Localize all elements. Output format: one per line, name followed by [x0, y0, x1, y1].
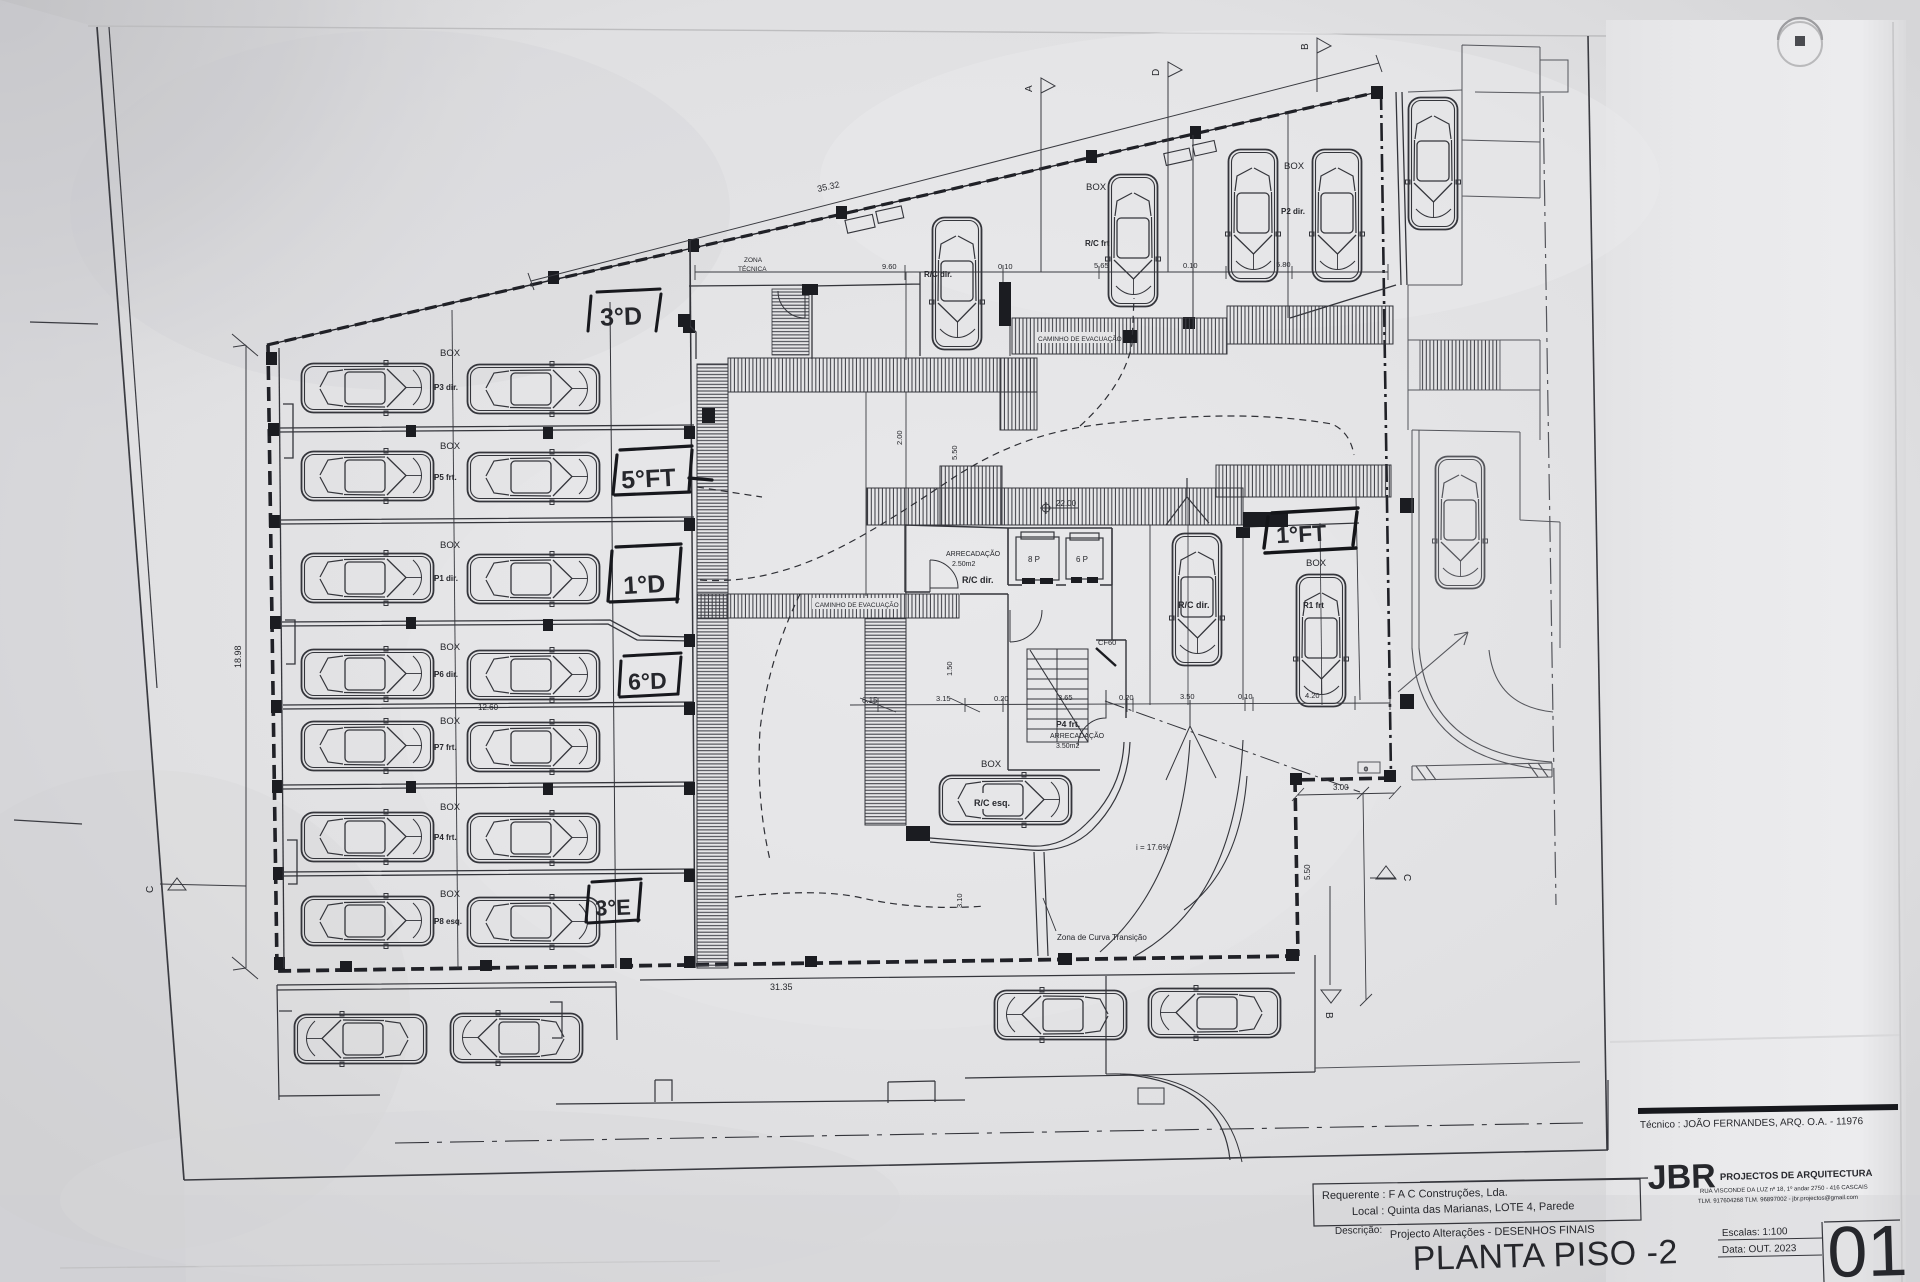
- svg-text:R/C dir.: R/C dir.: [924, 270, 952, 279]
- svg-text:i = 17.6%: i = 17.6%: [1136, 843, 1170, 852]
- svg-text:9.60: 9.60: [882, 262, 897, 271]
- svg-text:CAMINHO DE EVACUAÇÃO: CAMINHO DE EVACUAÇÃO: [815, 600, 899, 609]
- svg-text:2.00: 2.00: [895, 430, 904, 445]
- svg-text:0.20: 0.20: [994, 694, 1009, 703]
- svg-text:BOX: BOX: [440, 348, 461, 359]
- svg-text:o: o: [1364, 766, 1368, 773]
- svg-text:22.00: 22.00: [1056, 499, 1077, 508]
- svg-text:BOX: BOX: [440, 716, 461, 727]
- svg-text:R/C frt: R/C frt: [1085, 239, 1110, 248]
- svg-text:CAMINHO DE EVACUAÇÃO: CAMINHO DE EVACUAÇÃO: [1038, 334, 1122, 343]
- svg-text:BOX: BOX: [440, 642, 461, 653]
- svg-text:3.65: 3.65: [1058, 693, 1073, 702]
- svg-text:P4 frt.: P4 frt.: [1056, 719, 1080, 729]
- svg-text:BOX: BOX: [440, 889, 461, 900]
- svg-text:P4 frt.: P4 frt.: [434, 833, 457, 842]
- svg-text:3.00: 3.00: [1333, 783, 1349, 792]
- svg-text:P1 dir.: P1 dir.: [434, 574, 458, 583]
- svg-text:0.10: 0.10: [1183, 261, 1198, 270]
- svg-text:BOX: BOX: [1086, 182, 1107, 193]
- svg-text:5°FT: 5°FT: [621, 464, 677, 495]
- svg-text:A: A: [1024, 85, 1035, 92]
- svg-text:3°E: 3°E: [595, 894, 632, 920]
- svg-text:3.15: 3.15: [936, 694, 951, 703]
- svg-text:5.65: 5.65: [1094, 261, 1109, 270]
- svg-text:1°D: 1°D: [623, 570, 666, 600]
- svg-text:C: C: [145, 886, 156, 893]
- svg-text:BOX: BOX: [440, 441, 461, 452]
- svg-text:18.98: 18.98: [233, 645, 243, 668]
- svg-text:BOX: BOX: [1284, 161, 1305, 172]
- svg-text:P5 frt.: P5 frt.: [434, 473, 457, 482]
- svg-text:BOX: BOX: [440, 540, 461, 551]
- svg-text:6 P: 6 P: [1076, 555, 1088, 564]
- svg-text:12.60: 12.60: [478, 703, 499, 712]
- svg-text:6°D: 6°D: [628, 667, 667, 694]
- svg-text:1.50: 1.50: [945, 661, 954, 676]
- svg-text:BOX: BOX: [440, 802, 461, 813]
- svg-text:CF60: CF60: [1098, 638, 1116, 647]
- svg-text:Zona de Curva Transição: Zona de Curva Transição: [1057, 933, 1147, 942]
- svg-text:3.50: 3.50: [1180, 692, 1195, 701]
- svg-text:0.20: 0.20: [1119, 693, 1134, 702]
- svg-text:P6 dir.: P6 dir.: [434, 670, 458, 679]
- svg-text:1°FT: 1°FT: [1276, 520, 1327, 549]
- svg-text:R1 frt: R1 frt: [1303, 601, 1324, 610]
- svg-text:BOX: BOX: [981, 759, 1002, 770]
- svg-text:3.50m2: 3.50m2: [1056, 743, 1079, 750]
- svg-text:P8 esq.: P8 esq.: [434, 917, 462, 926]
- svg-text:Descrição:: Descrição:: [1335, 1225, 1383, 1237]
- svg-text:2.50m2: 2.50m2: [952, 561, 975, 568]
- svg-text:8 P: 8 P: [1028, 555, 1040, 564]
- svg-text:ARRECADAÇÃO: ARRECADAÇÃO: [946, 549, 1001, 558]
- svg-text:3.10: 3.10: [955, 893, 964, 908]
- svg-text:B: B: [1323, 1012, 1334, 1019]
- svg-text:5.50: 5.50: [1303, 864, 1312, 880]
- svg-text:3°D: 3°D: [600, 302, 643, 331]
- svg-text:R/C dir.: R/C dir.: [962, 575, 994, 585]
- svg-text:D: D: [1151, 69, 1162, 76]
- svg-text:B: B: [1300, 43, 1311, 50]
- svg-text:P2 dir.: P2 dir.: [1281, 207, 1305, 216]
- svg-text:C: C: [1401, 874, 1412, 881]
- svg-text:R/C dir.: R/C dir.: [1178, 600, 1210, 610]
- svg-text:R/C esq.: R/C esq.: [974, 798, 1010, 808]
- svg-text:Data: OUT. 2023: Data: OUT. 2023: [1722, 1243, 1797, 1256]
- svg-text:PLANTA PISO -2: PLANTA PISO -2: [1412, 1233, 1678, 1278]
- svg-text:P7 frt.: P7 frt.: [434, 743, 457, 752]
- svg-text:BOX: BOX: [1306, 558, 1327, 569]
- svg-text:ARRECADAÇÃO: ARRECADAÇÃO: [1050, 731, 1105, 740]
- svg-text:0.10: 0.10: [1238, 692, 1253, 701]
- svg-text:Escalas: 1:100: Escalas: 1:100: [1722, 1226, 1788, 1239]
- svg-text:31.35: 31.35: [770, 982, 793, 992]
- svg-text:0.10: 0.10: [998, 262, 1013, 271]
- svg-text:ZONA: ZONA: [744, 257, 763, 264]
- svg-text:P3 dir.: P3 dir.: [434, 383, 458, 392]
- svg-text:5.50: 5.50: [950, 445, 959, 460]
